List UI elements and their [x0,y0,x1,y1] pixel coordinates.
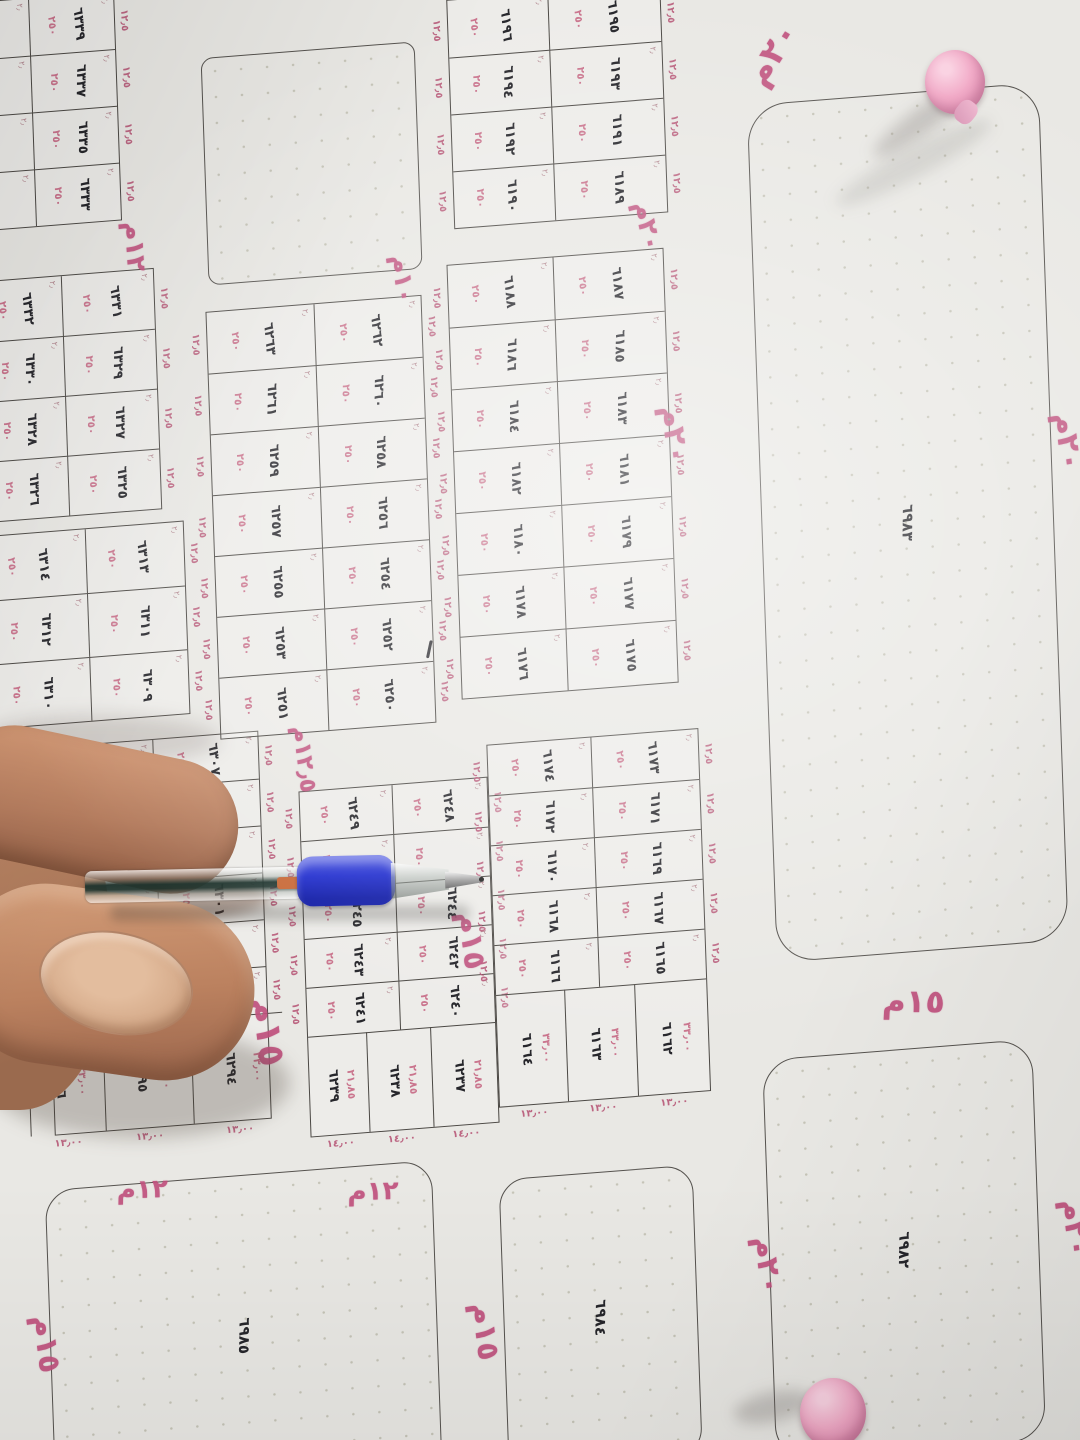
plot-number: ٦٣٣٩ [69,6,88,41]
corner-tick: ٢٫ [579,793,588,801]
street-width-label: ٢٠م [653,403,695,467]
plot-depth-dim: ٢٥٠ [576,276,590,297]
plot-cell: ٢٥٠٢٫ [0,112,34,173]
plot-number: ٦١٩٤ [500,65,517,98]
street-frontage-dim: ١٢٫٥ [200,637,212,660]
street-frontage-dim: ١٢٫٥ [704,792,716,815]
corner-tick: ٢٫ [538,112,547,120]
plot-number: ٦٢٥٨ [373,435,389,469]
street-frontage-dim: ١٢٫٥ [190,605,202,628]
street-frontage-dim: ١٢٫٥ [192,669,204,692]
plot-number: ٦١٧٨ [511,584,529,618]
street-frontage-dim: ١٢٫٥ [668,114,680,137]
plot-cell: ٦١٩٦٢٥٠٢٫ [447,0,549,58]
plot-width-dim: ١٣٫٠٠ [520,1107,549,1120]
corner-tick: ٢٫ [102,54,111,62]
corner-tick: ٢٫ [313,675,322,683]
corner-tick: ٢٫ [76,662,85,670]
plot-width-dim: ١٤٫٠٠ [452,1127,481,1140]
street-frontage-dim: ١٢٫٥ [190,333,202,356]
plot-cell: ٦١٧٣٢٥٠٢٫ [590,729,699,787]
corner-tick: ٢٫ [307,492,316,500]
street-frontage-dim: ١٢٫٥ [470,760,482,783]
plot-cell: ٦٢٦٢٢٥٠٢٫ [313,296,422,365]
plot-depth-dim: ٢٥٠ [229,331,243,352]
corner-tick: ٢٫ [658,502,667,510]
street-frontage-dim: ١٢٫٥ [162,406,174,429]
block-number: ٦٩٨٢ [895,1231,914,1268]
plot-cell: ٦١٨٦٢٥٠٢٫ [450,319,557,389]
plot-depth-dim: ٢٥٠ [50,130,62,150]
plot-cell: ٦٣٢٥٢٥٠٢٫ [67,448,161,515]
plot-depth-dim: ٢٥٠ [571,9,585,30]
plot-number: ٦٢٥٤ [377,557,394,591]
street-frontage-dim: ١٢٫٥ [708,891,720,914]
street-frontage-dim: ١٢٫٥ [664,0,676,23]
corner-tick: ٢٫ [474,782,483,790]
plot-cell: ٢٥٠٢٫ [0,56,32,117]
plot-depth-dim: ٢٥٠ [474,188,486,208]
plot-depth-dim: ٢٥٠ [85,414,97,434]
plot-cell: ٦١٦٨٢٥٠٢٫ [493,887,598,945]
corner-tick: ٢٫ [544,387,553,395]
plot-number: ٦٢٦٠ [371,374,388,407]
plot-number: ٦١٧٢ [541,800,558,833]
plot-cell: ٦١٧٧٢٥٠٢٫ [563,558,675,628]
street-width-label: ١٢٫٥م [287,724,321,795]
street-frontage-dim: ١٢٫٥ [158,287,170,310]
plot-number: ٦٢٤٣ [351,943,368,977]
street-frontage-dim: ١٢٫٥ [430,19,442,42]
plot-cell: ٦٢٥٧٢٥٠٢٫ [213,487,322,556]
plot-depth-dim: ٢١٫٨٥ [471,1059,484,1089]
plot-cell: ٦١٧٤٢٥٠٢٫ [487,738,592,796]
plot-number: ٦٢٣٨ [387,1063,404,1097]
plot-depth-dim: ٢٥٠ [80,294,94,315]
pen-grip [296,855,395,907]
corner-tick: ٢٫ [142,334,151,342]
street-frontage-dim: ١٢٫٥ [288,953,300,976]
street-width-label: ١٥م [464,1300,506,1364]
open-block-6983: ٦٩٨٣ [747,82,1069,963]
corner-tick: ٢٫ [542,325,551,333]
plot-number: ٦١٦٨ [545,899,562,933]
plot-depth-dim: ٢٥٠ [343,506,355,526]
corner-tick: ٢٫ [15,3,24,11]
plot-depth-dim: ٢٥٠ [411,797,425,818]
corner-tick: ٢٫ [654,378,663,386]
deep-plot-cell: ٦١٦٤٣٣٫٠٠ [496,990,568,1107]
street-frontage-dim: ١٢٫٥ [431,286,443,309]
plot-cell: ٦٢٥٨٢٥٠٢٫ [318,418,427,487]
street-frontage-dim: ١٢٫٥ [676,515,688,538]
plot-number: ٦٢٥٩ [266,444,282,478]
open-block-unnumbered [201,41,423,285]
corner-tick: ٢٫ [54,461,63,469]
corner-tick: ٢٫ [652,160,661,168]
plot-cell: ٦١٨٢٢٥٠٢٫ [454,443,561,513]
street-frontage-dim: ١٢٫٥ [436,618,448,641]
plot-number: ٦٣١٠ [40,676,56,710]
plot-cell: ٦٢٦١٢٥٠٢٫ [209,365,318,434]
plot-cell: ٦٣٣٧٢٥٠٢٫ [30,49,117,113]
corner-tick: ٢٫ [301,309,310,317]
plot-depth-dim: ٢٥٠ [0,361,11,381]
street-frontage-dim: ١٢٫٥ [442,595,454,618]
plot-depth-dim: ٢٥٠ [482,656,495,676]
plot-number: ٦١٦٦ [546,949,563,983]
street-frontage-dim: ١٢٫٥ [439,534,451,557]
plot-cell: ٦٣٢٦٢٥٠٢٫ [0,456,69,522]
block-number: ٦٩٨٣ [898,504,917,541]
plot-cell: ٦٣٢٨٢٥٠٢٫ [0,396,67,462]
plot-depth-dim: ٢٥٠ [238,575,251,595]
street-frontage-dim: ١٢٫٥ [289,1002,301,1025]
plot-depth-dim: ٢٥٠ [576,123,588,143]
corner-tick: ٢٫ [100,0,109,4]
street-frontage-dim: ١٢٫٥ [188,541,200,564]
deep-plot-cell: ٦٢٣٨٢١٫٨٥ [366,1027,433,1132]
plot-number: ٦٣٣٧ [72,64,89,97]
plot-number: ٦١٦٥ [652,940,669,974]
plot-depth-dim: ٢٥٠ [615,801,627,821]
plot-depth-dim: ٢٥٠ [480,594,493,614]
plot-depth-dim: ٢٥٠ [240,635,253,655]
plot-number: ٦٣٢٨ [24,412,40,446]
plot-cell: ٦٣٢٩٢٥٠٢٫ [63,329,157,396]
plot-number: ٦١٦٣ [587,1027,604,1061]
plot-number: ٦٣١١ [137,604,154,637]
open-block-6984: ٦٩٨٤ [499,1164,703,1440]
plot-number: ٦٢٦٣ [260,321,279,356]
corner-tick: ٢٫ [585,942,594,950]
plot-cell: ٦١٨٤٢٥٠٢٫ [452,381,559,451]
street-frontage-dim: ١٢٫٥ [437,472,449,495]
block-number: ٦٩٨٥ [234,1317,253,1354]
plot-depth-dim: ٢٥٠ [236,514,248,534]
block-6175: ٦١٨٨٢٥٠٢٫٦١٨٧٢٥٠٢٫١٢٫٥١٢٫٥٦١٨٦٢٥٠٢٫٦١٨٥٢… [446,248,678,700]
block-6189: ٦١٩٦٢٥٠٢٫٦١٩٥٢٥٠٢٫١٢٫٥١٢٫٥٦١٩٤٢٥٠٢٫٦١٩٣٢… [446,0,668,229]
plot-cell: ٦١٧١٢٥٠٢٫ [592,779,701,837]
street-frontage-dim: ١٢٫٥ [124,179,136,202]
corner-tick: ٢٫ [536,55,545,63]
plot-cell: ٦٣٣٣٢٥٠٢٫ [34,163,121,227]
plot-number: ٦٢٤٩ [344,795,363,830]
corner-tick: ٢٫ [420,666,429,674]
plot-number: ٦٢٣٧ [451,1058,468,1092]
plot-number: ٦٢٦١ [263,383,280,416]
plot-depth-dim: ٢٥٠ [3,481,15,501]
open-block-6982: ٦٩٨٢ [762,1039,1046,1440]
plot-number: ٦١٧٠ [543,849,559,883]
plot-depth-dim: ٢٥٠ [581,400,593,420]
corner-tick: ٢٫ [303,371,312,379]
plot-depth-dim: ٢٥٠ [0,300,9,321]
corner-tick: ٢٫ [104,111,113,119]
plot-depth-dim: ٢٥٠ [469,284,483,305]
plot-depth-dim: ٢٥٠ [472,347,484,367]
plot-depth-dim: ٢٥٠ [45,15,59,36]
street-frontage-dim: ١٢٫٥ [434,132,446,155]
plot-cell: ٦٣٣١٢٥٠٢٫ [61,269,155,336]
corner-tick: ٢٫ [540,169,549,177]
plot-number: ٦١٨٩ [611,170,628,204]
block-6325: ٦٣٣٢٢٥٠٢٫٦٣٣١٢٥٠٢٫١٢٫٥٦٣٣٠٢٥٠٢٫٦٣٢٩٢٥٠٢٫… [0,268,162,523]
plot-number: ٦١٦٢ [658,1021,675,1055]
plot-number: ٦٣٣٠ [22,352,39,385]
plot-depth-dim: ٢٥٠ [613,750,627,771]
plot-width-dim: ١٤٫٠٠ [388,1132,417,1145]
street-frontage-dim: ١٢٫٥ [702,742,714,765]
plot-number: ٦١٨٨ [500,275,519,310]
plot-number: ٦١٦٤ [518,1032,535,1066]
street-frontage-dim: ١٢٫٥ [160,347,172,370]
plot-width-dim: ١٣٫٠٠ [54,1137,83,1150]
plot-depth-dim: ٢٥٠ [585,524,598,544]
plot-depth-dim: ٢٥٠ [617,851,629,871]
street-frontage-dim: ١٢٫٥ [436,189,448,212]
plot-cell: ٦٣١٢٢٥٠٢٫ [0,593,89,665]
street-frontage-dim: ١٢٫٥ [434,557,446,580]
street-frontage-dim: ١٢٫٥ [435,410,447,433]
corner-tick: ٢٫ [17,61,26,69]
street-width-label: ٢٠م [1054,1196,1080,1260]
street-width-label: ١٥م [25,1312,67,1376]
street-frontage-dim: ١٢٫٥ [430,436,442,459]
plot-depth-dim: ٢٥٠ [574,67,586,87]
plot-number: ٦١٩٢ [502,122,518,156]
street-frontage-dim: ١٢٫٥ [432,76,444,99]
plot-depth-dim: ٢٥٠ [417,945,429,965]
plot-width-dim: ١٣٫٠٠ [660,1096,689,1109]
plot-number: ٦٢٥٠ [381,678,399,713]
street-frontage-dim: ١٢٫٥ [120,65,132,88]
plot-depth-dim: ٢٥٠ [345,566,358,586]
street-frontage-dim: ١٢٫٥ [444,657,456,680]
plot-depth-dim: ٢٥٠ [511,809,523,829]
plot-depth-dim: ٢٥٠ [578,180,590,200]
corner-tick: ٢٫ [106,168,115,176]
block-6309: ٦٣١٤٢٥٠٢٫٦٣١٣٢٥٠٢٫١٢٫٥٦٣١٢٢٥٠٢٫٦٣١١٢٥٠٢٫… [0,521,190,730]
plot-depth-dim: ٢٥٠ [10,685,22,705]
plot-cell: ٦١٧٩٢٥٠٢٫ [561,496,673,566]
plot-depth-dim: ٢٥٠ [5,557,19,578]
block-6250: ٦٢٦٣٢٥٠٢٫٦٢٦٢٢٥٠٢٫١٢٫٥١٢٫٥٦٢٦١٢٥٠٢٫٦٢٦٠٢… [205,295,436,740]
corner-tick: ٢٫ [551,572,560,580]
plot-cell: ٦٢٦٠٢٥٠٢٫ [316,357,425,426]
plot-number: ٦١٧٣ [644,740,663,775]
plot-depth-dim: ٢٥٠ [111,677,123,697]
plot-depth-dim: ٢٥٠ [341,445,353,465]
deep-plot-cell: ٦١٦٣٣٣٫٠٠ [564,984,638,1101]
corner-tick: ٢٫ [688,834,697,842]
plot-cell: ٦١٩٠٢٥٠٢٫ [453,163,555,228]
plot-cell: ٦٣٣٥٢٥٠٢٫ [32,106,119,170]
street-frontage-dim: ١٢٫٥ [666,57,678,80]
plot-number: ٦٢٥٦ [375,496,392,530]
plot-number: ٦١٧٤ [539,748,558,783]
corner-tick: ٢٫ [48,281,57,289]
street-frontage-dim: ١٢٫٥ [164,466,176,489]
plot-number: ٦٢٣٩ [326,1068,343,1102]
corner-tick: ٢٫ [140,273,149,281]
plot-number: ٦١٨٤ [506,399,522,433]
plot-depth-dim: ٢٥٠ [339,384,351,404]
corner-tick: ٢٫ [174,655,183,663]
street-frontage-dim: ١٢٫٥ [438,679,450,702]
plot-cell: ٦١٨١٢٥٠٢٫ [559,434,671,504]
corner-tick: ٢٫ [475,832,484,840]
street-frontage-dim: ١٢٫٥ [679,577,691,600]
plot-number: ٦١٨١ [616,452,633,486]
corner-tick: ٢٫ [309,553,318,561]
plot-cell: ٦١٧٦٢٥٠٢٫ [461,628,568,698]
corner-tick: ٢٫ [50,341,59,349]
deep-plot-cell: ٦٢٣٧٢١٫٨٥ [430,1022,498,1127]
corner-tick: ٢٫ [384,937,393,945]
plot-cell: ٦١٧٢٢٥٠٢٫ [489,787,594,845]
deep-plot-cell: ٦٢٣٩٢١٫٨٥ [308,1032,369,1136]
corner-tick: ٢٫ [648,46,657,54]
street-frontage-dim: ١٢٫٥ [282,806,294,829]
plot-cell: ٢٥٠٢٫ [0,0,30,60]
plot-cell: ٦٣٣٩٢٥٠٢٫ [28,0,115,56]
corner-tick: ٢٫ [144,394,153,402]
corner-tick: ٢٫ [251,925,260,933]
corner-tick: ٢٫ [74,599,83,607]
corner-tick: ٢٫ [686,784,695,792]
corner-tick: ٢٫ [311,614,320,622]
corner-tick: ٢٫ [246,784,255,792]
street-width-label: ٢٠م [1047,410,1080,474]
plot-cell: ٦٣٣٠٢٥٠٢٫ [0,336,65,402]
corner-tick: ٢٫ [652,316,661,324]
plot-number: ٦٣٣٥ [75,121,91,155]
plot-number: ٦٣١٢ [38,612,55,645]
street-frontage-dim: ١٢٫٥ [681,639,693,662]
street-frontage-dim: ١٢٫٥ [262,743,274,766]
street-frontage-dim: ١٢٫٥ [264,790,276,813]
plot-number: ٦٢٥٣ [271,626,289,660]
street-frontage-dim: ١٢٫٥ [192,394,204,417]
street-width-label: ١٥م [881,982,945,1021]
plot-number: ٦٣٢٩ [109,346,126,379]
street-frontage-dim: ١٢٫٥ [433,348,445,371]
plot-cell: ٦٢٤١٢٥٠٢٫ [306,981,400,1037]
ballpoint-pen [84,846,487,918]
plot-number: ٦١٨٧ [608,266,627,301]
plot-depth-dim: ٢٥٠ [587,586,600,606]
corner-tick: ٢٫ [650,103,659,111]
corner-tick: ٢٫ [146,454,155,462]
plot-number: ٦٣٣٢ [19,291,38,326]
plot-cell: ٦١٨٨٢٥٠٢٫ [448,258,555,328]
plot-cell: ٦١٩٤٢٥٠٢٫ [449,50,551,115]
corner-tick: ٢٫ [72,534,81,542]
plot-cell: ٦٢٥٢٢٥٠٢٫ [324,600,433,669]
plot-number: ٦١٧١ [647,791,664,824]
street-frontage-dim: ١٢٫٥ [432,497,444,520]
street-width-label: ١٢م [347,1176,398,1207]
plot-cell: ٦٢٦٣٢٥٠٢٫ [206,304,315,373]
plot-number: ٦٣٢٦ [26,472,43,506]
plot-width-dim: ١٤٫٠٠ [327,1137,356,1150]
plot-depth-dim: ٢٥٠ [105,549,119,570]
corner-tick: ٢٫ [581,843,590,851]
plot-depth-dim: ٢٥٠ [349,688,362,708]
plot-depth-dim: ٢٥٠ [508,758,522,779]
push-pin-bottom [800,1378,866,1440]
street-frontage-dim: ١٢٫٥ [670,329,682,352]
plot-depth-dim: ٢٥٠ [82,355,94,375]
plot-cell: ٦١٧٥٢٥٠٢٫ [566,620,678,690]
plot-cell: ٦٢٥٠٢٥٠٢٫ [326,661,435,730]
plot-number: ٦١٩٠ [504,179,521,213]
block-6165: ٦١٧٤٢٥٠٢٫٦١٧٣٢٥٠٢٫١٢٫٥١٢٫٥٦١٧٢٢٥٠٢٫٦١٧١٢… [486,728,711,1108]
plot-cell: ٢٥٠٢٫ [0,169,36,230]
corner-tick: ٢٫ [534,0,543,5]
plot-number: ٦٢٦٢ [368,312,387,347]
plot-depth-dim: ٢٥٠ [231,393,243,413]
corner-tick: ٢٫ [418,605,427,613]
street-width-label: ١٢م [118,219,151,273]
plot-number: ٦٢٥٥ [270,565,287,599]
plot-depth-dim: ٢٥٠ [1,421,13,441]
street-frontage-dim: ١٢٫٥ [706,842,718,865]
plot-depth-dim: ٣٣٫٠٠ [609,1027,622,1057]
plot-cell: ٦٢٥٤٢٥٠٢٫ [322,539,431,608]
corner-tick: ٢٫ [172,591,181,599]
street-frontage-dim: ١٢٫٥ [472,810,484,833]
plot-cell: ٦١٩٣٢٥٠٢٫ [549,41,663,107]
plot-number: ٦١٧٧ [620,576,638,610]
plot-depth-dim: ٢٥٠ [514,909,526,929]
street-frontage-dim: ١٢٫٥ [709,941,721,964]
plot-number: ٦١٧٥ [622,638,640,673]
street-width-label: ٢٠م [737,15,807,93]
plot-depth-dim: ٢٥٠ [470,75,482,95]
plot-number: ٦١٧٩ [618,514,635,548]
corner-tick: ٢٫ [410,362,419,370]
block-6333: ٢٥٠٢٫٦٣٣٩٢٥٠٢٫١٢٫٥٢٥٠٢٫٦٣٣٧٢٥٠٢٫١٢٫٥٢٥٠٢… [0,0,122,232]
plot-number: ٦٣٢٥ [114,465,131,499]
street-width-label: ١٢م [117,1174,168,1205]
street-frontage-dim: ١٢٫٥ [668,268,680,291]
corner-tick: ٢٫ [412,423,421,431]
corner-tick: ٢٫ [663,625,672,633]
plot-width-dim: ١٣٫٠٠ [589,1101,618,1114]
plot-number: ٦١٩٥ [604,0,623,34]
plot-depth-dim: ٢٥٠ [478,532,491,552]
plot-cell: ٦١٦٩٢٥٠٢٫ [594,829,703,887]
plot-cell: ٦٣١٤٢٥٠٢٫ [0,529,87,601]
corner-tick: ٢٫ [386,986,395,994]
plot-number: ٦٢٤١ [352,992,369,1026]
plot-depth-dim: ٢١٫٨٥ [406,1064,419,1094]
plot-number: ٦٢٥١ [273,686,291,721]
plot-cell: ٦٢٤٩٢٥٠٢٫ [299,785,393,841]
corner-tick: ٢٫ [540,262,549,270]
plot-depth-dim: ٢٥٠ [325,1001,338,1021]
plot-depth-dim: ٢٥٠ [467,17,481,38]
corner-tick: ٢٫ [692,934,701,942]
plot-number: ٦٣١٤ [34,547,53,582]
plot-cell: ٦٢٥٣٢٥٠٢٫ [217,608,326,677]
street-frontage-dim: ١٢٫٥ [198,576,210,599]
plot-cell: ٦١٧٠٢٥٠٢٫ [491,837,596,895]
plot-cell: ٦٢٥٩٢٥٠٢٫ [211,426,320,495]
corner-tick: ٢٫ [21,175,30,183]
